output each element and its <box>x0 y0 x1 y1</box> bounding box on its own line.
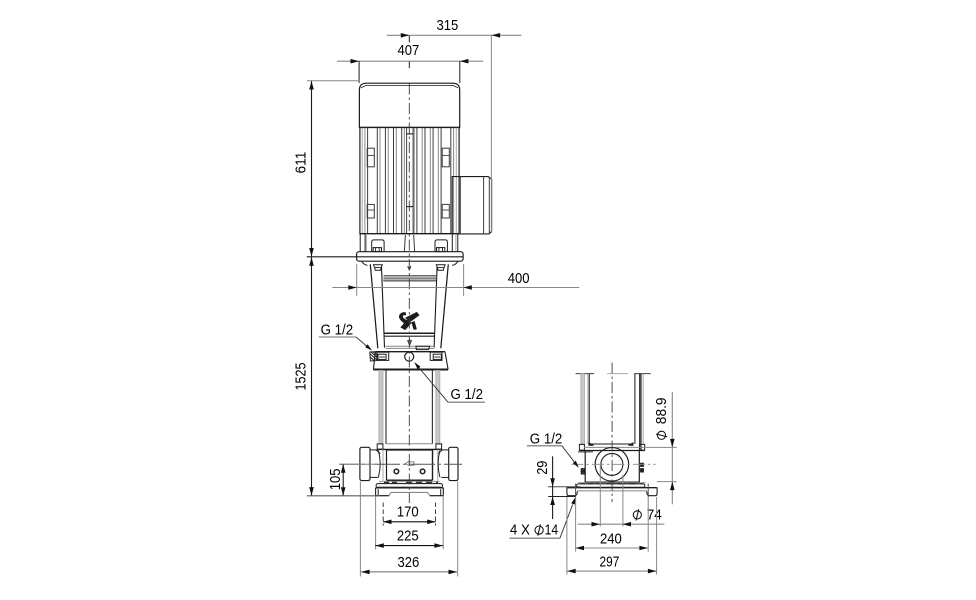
svg-text:14: 14 <box>545 522 559 539</box>
svg-text:315: 315 <box>437 17 459 34</box>
svg-text:400: 400 <box>508 270 530 287</box>
svg-text:326: 326 <box>398 554 420 571</box>
svg-text:407: 407 <box>398 42 420 59</box>
svg-text:G 1/2: G 1/2 <box>321 321 354 338</box>
svg-text:88.9: 88.9 <box>653 397 670 424</box>
svg-text:170: 170 <box>397 503 419 520</box>
svg-text:240: 240 <box>600 531 622 548</box>
svg-text:297: 297 <box>600 554 620 571</box>
svg-text:29: 29 <box>534 461 551 475</box>
svg-text:G 1/2: G 1/2 <box>530 430 563 447</box>
svg-text:G 1/2: G 1/2 <box>451 386 484 403</box>
svg-text:611: 611 <box>293 152 310 174</box>
svg-text:74: 74 <box>647 506 662 523</box>
svg-text:225: 225 <box>397 527 419 544</box>
svg-text:4 X: 4 X <box>510 522 530 539</box>
svg-text:1525: 1525 <box>293 363 310 391</box>
svg-text:105: 105 <box>327 469 344 491</box>
